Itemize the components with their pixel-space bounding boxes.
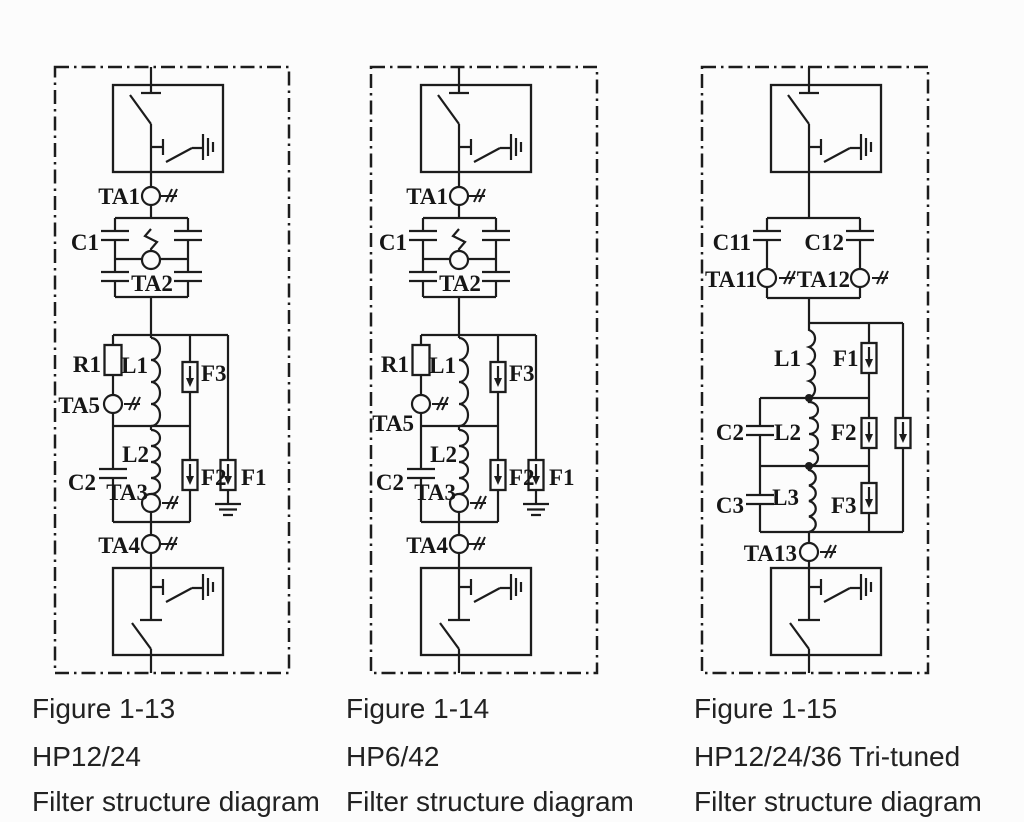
- d3-label-l1: L1: [774, 346, 801, 371]
- d3-label-f1: F1: [833, 346, 859, 371]
- d1-caption-model: HP12/24: [32, 741, 141, 772]
- d2-label-l2: L2: [430, 442, 457, 467]
- d2-label-ta4: TA4: [406, 533, 448, 558]
- d3-caption-type: Filter structure diagram: [694, 786, 982, 817]
- d2-label-c2: C2: [376, 470, 404, 495]
- d1-label-c2: C2: [68, 470, 96, 495]
- d3-label-ta13: TA13: [744, 541, 797, 566]
- d1-label-ta5: TA5: [58, 393, 100, 418]
- d1-label-f1: F1: [241, 465, 267, 490]
- d3-label-ta12: TA12: [797, 267, 850, 292]
- diagram-hp12-24-36-tri-tuned: C11 C12 TA11 TA12 L1 F1 C2 L2 F2 C3 L3 F…: [694, 67, 982, 817]
- d3-label-c3: C3: [716, 493, 744, 518]
- d1-label-f2: F2: [201, 465, 227, 490]
- d3-label-l2: L2: [774, 420, 801, 445]
- d1-caption-type: Filter structure diagram: [32, 786, 320, 817]
- d2-label-ta2: TA2: [439, 271, 481, 296]
- diagram-hp6-42: TA1 C1 TA2 R1 L1 F3 TA5 L2 C2 TA3 F2 F1 …: [346, 67, 634, 817]
- d1-label-ta3: TA3: [106, 480, 148, 505]
- scanned-page: TA1 C1 TA2 R1 L1 F3 TA5 L2 C2 TA3 F2 F1 …: [0, 0, 1024, 822]
- d3-label-ta11: TA11: [705, 267, 757, 292]
- d3-junction-dot-lower: [805, 462, 813, 470]
- d3-caption-model: HP12/24/36 Tri-tuned: [694, 741, 960, 772]
- d2-caption-figure: Figure 1-14: [346, 693, 489, 724]
- diagram-hp12-24: TA1 C1 TA2 R1 L1 F3 TA5 L2 C2 TA3 F2 F1 …: [32, 67, 320, 817]
- d1-label-c1: C1: [71, 230, 99, 255]
- d3-label-f3: F3: [831, 493, 857, 518]
- d2-caption-type: Filter structure diagram: [346, 786, 634, 817]
- d2-label-f3: F3: [509, 361, 535, 386]
- d1-label-ta1: TA1: [98, 184, 140, 209]
- d1-label-l2: L2: [122, 442, 149, 467]
- d1-label-l1: L1: [121, 353, 148, 378]
- d3-junction-dot-upper: [805, 394, 813, 402]
- d3-label-f2: F2: [831, 420, 857, 445]
- d1-label-ta2: TA2: [131, 271, 173, 296]
- d3-caption-figure: Figure 1-15: [694, 693, 837, 724]
- d2-label-ta3: TA3: [414, 480, 456, 505]
- d1-label-ta4: TA4: [98, 533, 140, 558]
- d1-label-f3: F3: [201, 361, 227, 386]
- d3-label-c11: C11: [713, 230, 751, 255]
- d2-label-ta5: TA5: [372, 411, 414, 436]
- d2-label-ta1: TA1: [406, 184, 448, 209]
- d2-label-c1: C1: [379, 230, 407, 255]
- d3-label-l3: L3: [772, 485, 799, 510]
- d2-label-f1: F1: [549, 465, 575, 490]
- d3-label-c2: C2: [716, 420, 744, 445]
- d1-caption-figure: Figure 1-13: [32, 693, 175, 724]
- d3-circuit: [746, 67, 911, 673]
- d1-label-r1: R1: [73, 352, 101, 377]
- d2-label-f2: F2: [509, 465, 535, 490]
- d3-label-c12: C12: [804, 230, 844, 255]
- d2-caption-model: HP6/42: [346, 741, 439, 772]
- d2-label-r1: R1: [381, 352, 409, 377]
- d2-label-l1: L1: [429, 353, 456, 378]
